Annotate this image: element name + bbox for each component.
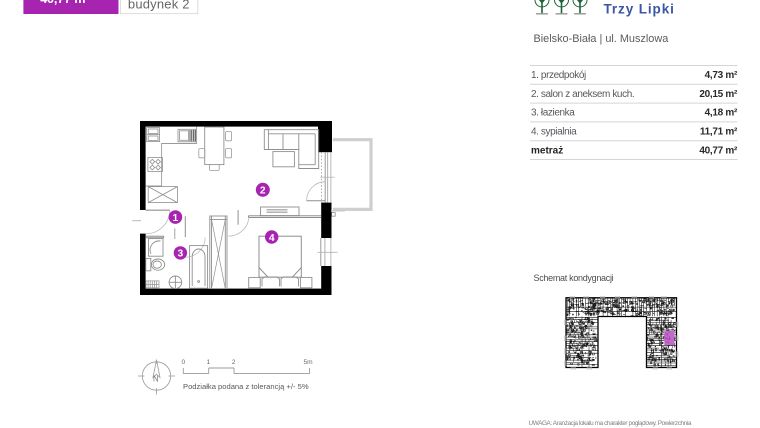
svg-text:metraż: metraż [531,145,563,156]
svg-text:1. przedpokój: 1. przedpokój [531,70,586,81]
svg-text:4,18 m²: 4,18 m² [705,108,738,119]
svg-text:3. łazienka: 3. łazienka [531,108,575,119]
svg-text:20,15 m²: 20,15 m² [699,89,738,100]
svg-text:5m: 5m [304,359,314,366]
svg-text:4: 4 [269,233,275,244]
svg-text:budynek 2: budynek 2 [128,0,190,12]
svg-text:UWAGA: Aranżacja lokalu ma cha: UWAGA: Aranżacja lokalu ma charakter pog… [529,420,692,427]
svg-text:Podziałka podana z tolerancją: Podziałka podana z tolerancją +/- 5% [183,382,309,391]
svg-text:Trzy Lipki: Trzy Lipki [604,2,675,17]
svg-text:11,71 m²: 11,71 m² [700,126,738,137]
svg-text:2: 2 [260,186,266,197]
svg-text:3: 3 [178,249,184,260]
svg-text:1: 1 [207,359,211,366]
svg-text:2: 2 [232,359,236,366]
svg-text:Schemat kondygnacji: Schemat kondygnacji [534,273,614,283]
svg-text:N: N [153,375,159,384]
svg-text:0: 0 [182,359,186,366]
svg-text:40,77 m²: 40,77 m² [40,0,89,6]
svg-text:1: 1 [173,213,179,224]
svg-text:4. sypialnia: 4. sypialnia [531,126,577,137]
svg-text:40,77 m²: 40,77 m² [699,145,738,156]
svg-text:2. salon z aneksem kuch.: 2. salon z aneksem kuch. [531,89,634,100]
svg-text:Bielsko-Biała | ul. Muszlowa: Bielsko-Biała | ul. Muszlowa [534,33,670,45]
svg-text:4,73 m²: 4,73 m² [705,70,738,81]
